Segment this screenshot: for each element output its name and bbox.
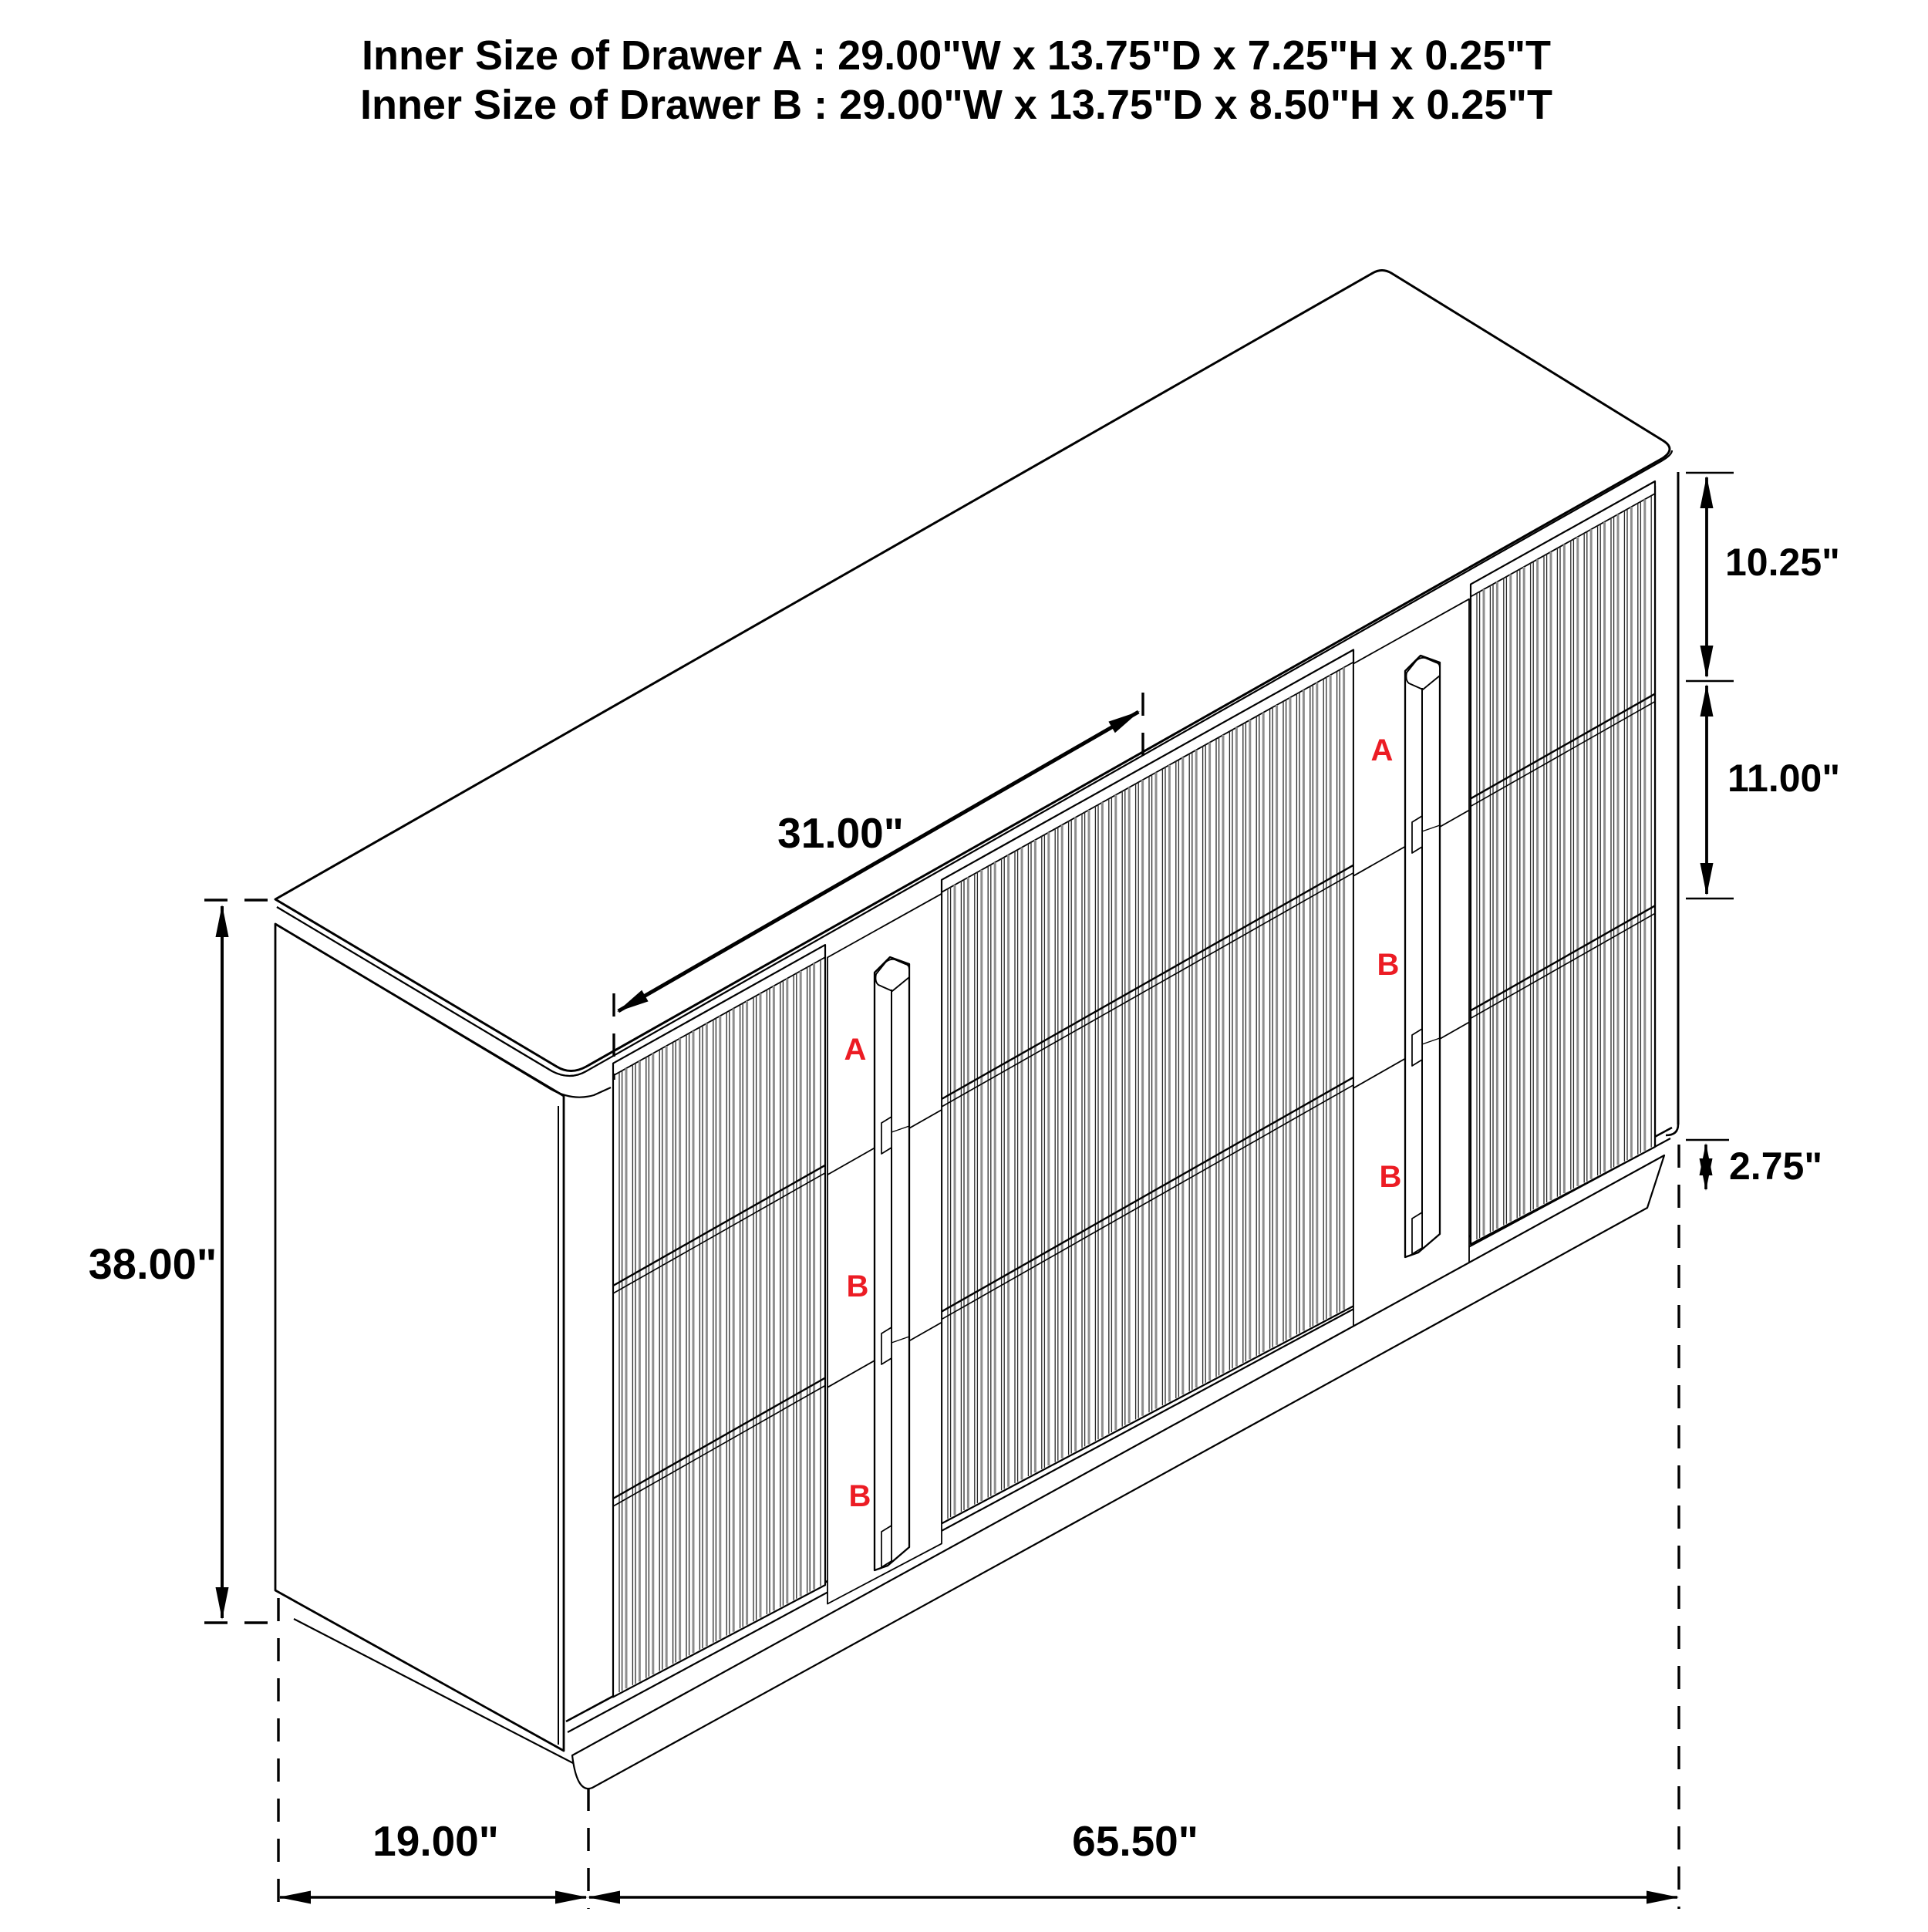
svg-text:38.00": 38.00" bbox=[89, 1239, 217, 1288]
svg-text:Inner Size of Drawer A : 29.00: Inner Size of Drawer A : 29.00"W x 13.75… bbox=[362, 32, 1551, 79]
svg-text:Inner Size of Drawer B : 29.00: Inner Size of Drawer B : 29.00"W x 13.75… bbox=[360, 82, 1552, 128]
svg-text:B: B bbox=[849, 1479, 871, 1513]
svg-text:11.00": 11.00" bbox=[1727, 757, 1840, 800]
svg-text:10.25": 10.25" bbox=[1725, 541, 1840, 584]
svg-text:19.00": 19.00" bbox=[372, 1817, 499, 1865]
svg-text:B: B bbox=[847, 1269, 869, 1303]
svg-text:A: A bbox=[844, 1033, 867, 1067]
svg-text:B: B bbox=[1377, 948, 1400, 982]
svg-text:31.00": 31.00" bbox=[777, 809, 904, 857]
svg-text:2.75": 2.75" bbox=[1729, 1145, 1822, 1188]
svg-text:65.50": 65.50" bbox=[1072, 1817, 1198, 1865]
svg-text:B: B bbox=[1380, 1160, 1402, 1194]
svg-text:A: A bbox=[1371, 733, 1394, 767]
